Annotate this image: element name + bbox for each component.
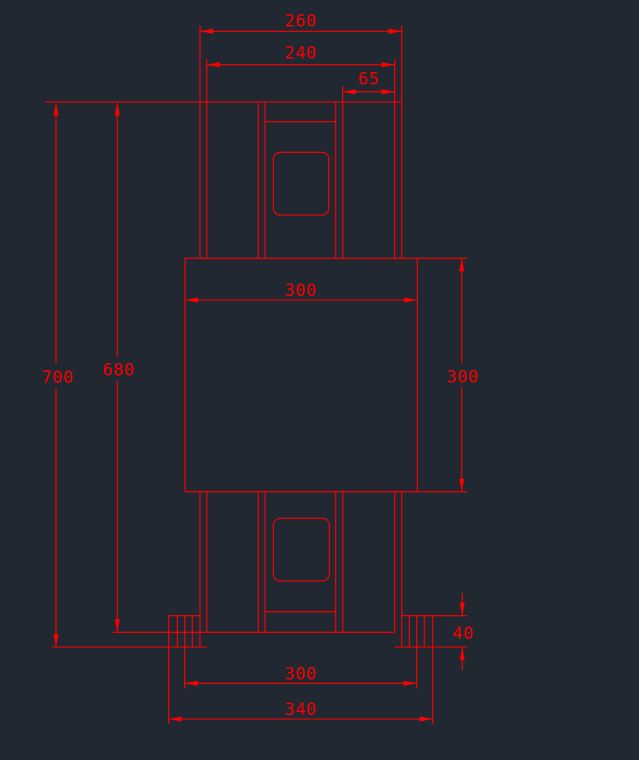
dim-text-block-height[interactable]: 300 — [447, 368, 479, 388]
dimension-block-width[interactable]: 300 — [185, 281, 417, 303]
dim-text-block-width[interactable]: 300 — [285, 281, 317, 301]
dimension-foot-height[interactable]: 40 — [453, 593, 474, 670]
upper-section-outline[interactable] — [45, 102, 402, 258]
dimension-overall-height[interactable]: 700 — [42, 103, 74, 648]
dim-text-340[interactable]: 340 — [285, 700, 317, 720]
arrowhead-up — [115, 103, 120, 116]
dimension-base-outer-width[interactable]: 340 — [169, 647, 433, 724]
dim-text-240[interactable]: 240 — [285, 44, 317, 64]
dimension-top-right-offset[interactable]: 65 — [343, 70, 395, 103]
arrowhead-left — [343, 89, 356, 94]
dim-text-680[interactable]: 680 — [103, 361, 135, 381]
arrowhead-right — [404, 681, 417, 686]
dimension-base-inner-width[interactable]: 300 — [185, 647, 417, 688]
arrowhead-left — [185, 681, 198, 686]
dim-text-260[interactable]: 260 — [285, 12, 317, 32]
center-block-outline[interactable] — [185, 258, 467, 491]
dimension-inner-height[interactable]: 680 — [103, 103, 135, 633]
arrowhead-down — [460, 603, 465, 616]
lower-section-outline[interactable] — [200, 492, 402, 633]
upper-window[interactable] — [273, 152, 329, 215]
lower-window[interactable] — [273, 518, 329, 581]
arrowhead-down — [459, 479, 464, 492]
arrowhead-right — [420, 717, 433, 722]
arrowhead-left — [200, 29, 213, 34]
dimensions[interactable]: 260 240 65 700 — [42, 12, 479, 725]
arrowhead-left — [169, 717, 182, 722]
dim-text-base-inner[interactable]: 300 — [285, 665, 317, 685]
base-and-feet[interactable] — [52, 616, 467, 647]
arrowhead-down — [54, 634, 59, 647]
arrowhead-up — [460, 647, 465, 660]
arrowhead-right — [382, 62, 395, 67]
arrowhead-down — [115, 619, 120, 632]
arrowhead-left — [185, 298, 198, 303]
arrowhead-right — [389, 29, 402, 34]
arrowhead-right — [404, 298, 417, 303]
arrowhead-up — [54, 103, 59, 116]
technical-drawing: 260 240 65 700 — [0, 0, 639, 760]
arrowhead-left — [207, 62, 220, 67]
dim-text-40[interactable]: 40 — [453, 624, 474, 644]
dim-text-700[interactable]: 700 — [42, 368, 74, 388]
arrowhead-right — [382, 89, 395, 94]
arrowhead-up — [459, 258, 464, 271]
dim-text-65[interactable]: 65 — [358, 70, 379, 90]
dimension-block-height[interactable]: 300 — [447, 258, 479, 491]
cad-viewport: 260 240 65 700 — [0, 0, 639, 760]
